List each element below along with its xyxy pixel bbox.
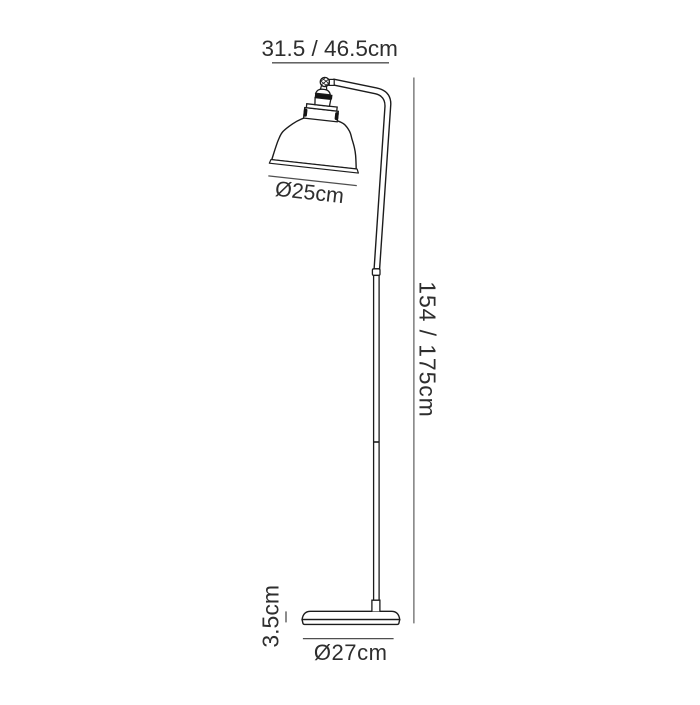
svg-text:154 / 175cm: 154 / 175cm	[415, 281, 441, 417]
svg-text:31.5 / 46.5cm: 31.5 / 46.5cm	[262, 36, 398, 61]
svg-text:Ø27cm: Ø27cm	[314, 640, 388, 665]
svg-text:3.5cm: 3.5cm	[258, 585, 284, 648]
